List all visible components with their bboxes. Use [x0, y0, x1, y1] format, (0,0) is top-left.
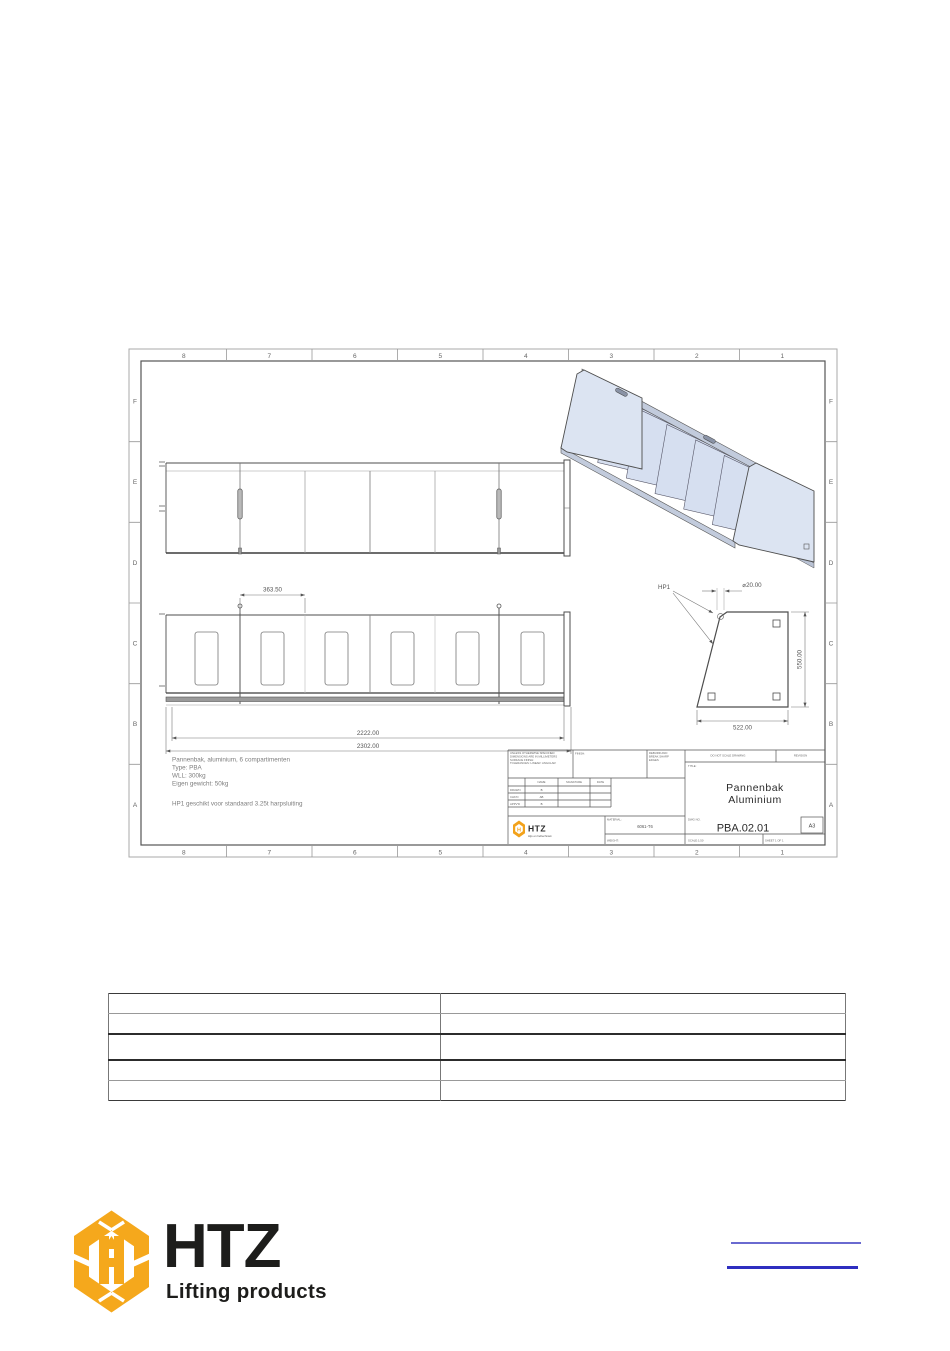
note-line: Pannenbak, aluminium, 6 compartimenten [172, 757, 290, 764]
sheet-label: SHEET 1 OF 1 [765, 839, 784, 843]
svg-text:4: 4 [524, 353, 528, 360]
row-appvd: APPV'D [510, 802, 520, 806]
scale-label: SCALE:1:50 [688, 839, 704, 843]
svg-text:2: 2 [695, 850, 699, 857]
note-line: WLL: 300kg [172, 773, 206, 780]
technical-drawing-svg: 8 7 6 5 4 3 2 1 8 7 6 5 4 3 2 1 F E D C … [128, 348, 838, 858]
spec-note: TOLERANCES: LINEAR: ANGULAR: [510, 761, 556, 765]
val-drawn: B [541, 788, 543, 792]
svg-text:F: F [829, 399, 833, 406]
dim-overall-length: 2302.00 [357, 743, 380, 750]
col-name: NAME [537, 780, 545, 784]
svg-text:8: 8 [182, 353, 186, 360]
drawing-notes: Pannenbak, aluminium, 6 compartimenten T… [172, 757, 303, 808]
svg-text:D: D [133, 560, 138, 567]
svg-text:4: 4 [524, 850, 528, 857]
dim-inner-length: 2222.00 [357, 730, 380, 737]
svg-text:5: 5 [438, 850, 442, 857]
svg-text:3: 3 [609, 353, 613, 360]
svg-text:8: 8 [182, 850, 186, 857]
svg-text:F: F [133, 399, 137, 406]
table-cell [109, 1034, 441, 1060]
htz-logo-text: HTZ [163, 1216, 281, 1278]
title-label: TITLE: [688, 764, 697, 768]
dwg-label: DWG NO. [688, 818, 701, 822]
svg-text:7: 7 [267, 850, 271, 857]
htz-logo-tagline: Lifting products [166, 1280, 327, 1304]
row-drawn: DRAWN [510, 788, 520, 792]
table-cell [109, 1060, 441, 1081]
svg-text:6: 6 [353, 850, 357, 857]
svg-text:H: H [517, 828, 521, 834]
titleblock-htz-logo-icon: H [513, 821, 525, 838]
svg-text:3: 3 [609, 850, 613, 857]
table-cell [109, 1081, 441, 1101]
drawing-title-line1: Pannenbak [726, 782, 784, 794]
svg-text:7: 7 [267, 353, 271, 360]
svg-text:5: 5 [438, 353, 442, 360]
table-cell [441, 994, 846, 1014]
note-line: HP1 geschikt voor standaard 3.25t harpsl… [172, 801, 303, 808]
finish-label: FINISH: [575, 752, 585, 756]
front-view-dimension-text: 363.50 2222.00 2302.00 [263, 587, 380, 751]
svg-text:1: 1 [780, 353, 784, 360]
svg-text:2: 2 [695, 353, 699, 360]
zone-labels: 8 7 6 5 4 3 2 1 8 7 6 5 4 3 2 1 F E D C … [133, 353, 834, 857]
table-cell [441, 1060, 846, 1081]
svg-text:A: A [829, 802, 834, 809]
link-underline-2[interactable] [727, 1266, 858, 1269]
drawing-number: PBA.02.01 [717, 823, 770, 835]
revision-label: REVISION [794, 754, 807, 758]
table-cell [441, 1034, 846, 1060]
do-not-scale-note: DO NOT SCALE DRAWING [711, 754, 746, 758]
engineering-drawing: 8 7 6 5 4 3 2 1 8 7 6 5 4 3 2 1 F E D C … [128, 348, 838, 858]
side-view [697, 612, 788, 707]
hole-label: HP1 [658, 584, 671, 591]
table-cell [441, 1081, 846, 1101]
weight-label: WEIGHT: [607, 839, 619, 843]
svg-text:E: E [133, 479, 138, 486]
table-cell [441, 1014, 846, 1035]
svg-text:C: C [829, 641, 834, 648]
sheet-frame [129, 349, 837, 857]
svg-text:B: B [829, 721, 833, 728]
val-chkd: AB [540, 795, 544, 799]
col-date: DATE [597, 780, 604, 784]
val-appvd: B [541, 802, 543, 806]
row-chkd: CHK'D [510, 795, 518, 799]
link-underline-1[interactable] [731, 1242, 861, 1244]
spec-table [108, 993, 845, 1098]
deburr-note: EDGES [649, 758, 659, 762]
isometric-view [561, 369, 814, 568]
front-view [159, 604, 570, 706]
svg-text:6: 6 [353, 353, 357, 360]
svg-text:E: E [829, 479, 834, 486]
svg-text:B: B [133, 721, 137, 728]
titleblock-logo-text: HTZ [528, 824, 546, 834]
svg-text:C: C [133, 641, 138, 648]
dim-pitch: 363.50 [263, 587, 282, 594]
rear-view [159, 460, 570, 556]
material-value: 6061-T6 [637, 824, 653, 829]
titleblock-logo-tagline: Hijs en heftechniek [528, 834, 552, 838]
dim-side-height: 550.00 [797, 649, 804, 668]
note-line: Type: PBA [172, 765, 203, 772]
note-line: Eigen gewicht: 50kg [172, 781, 229, 788]
title-block: UNLESS OTHERWISE SPECIFIED: DIMENSIONS A… [508, 750, 825, 844]
dim-side-width: 522.00 [733, 725, 752, 732]
col-signature: SIGNATURE [566, 780, 582, 784]
document-page: 8 7 6 5 4 3 2 1 8 7 6 5 4 3 2 1 F E D C … [0, 0, 950, 1351]
table-cell [109, 1014, 441, 1035]
svg-text:D: D [829, 560, 834, 567]
paper-size: A3 [809, 824, 816, 830]
material-label: MATERIAL: [607, 818, 622, 822]
dim-hole-diameter: ⌀20.00 [742, 582, 762, 589]
svg-text:A: A [133, 802, 138, 809]
drawing-title-line2: Aluminium [728, 794, 782, 806]
htz-logo-icon [70, 1208, 153, 1315]
svg-text:1: 1 [780, 850, 784, 857]
table-cell [109, 994, 441, 1014]
